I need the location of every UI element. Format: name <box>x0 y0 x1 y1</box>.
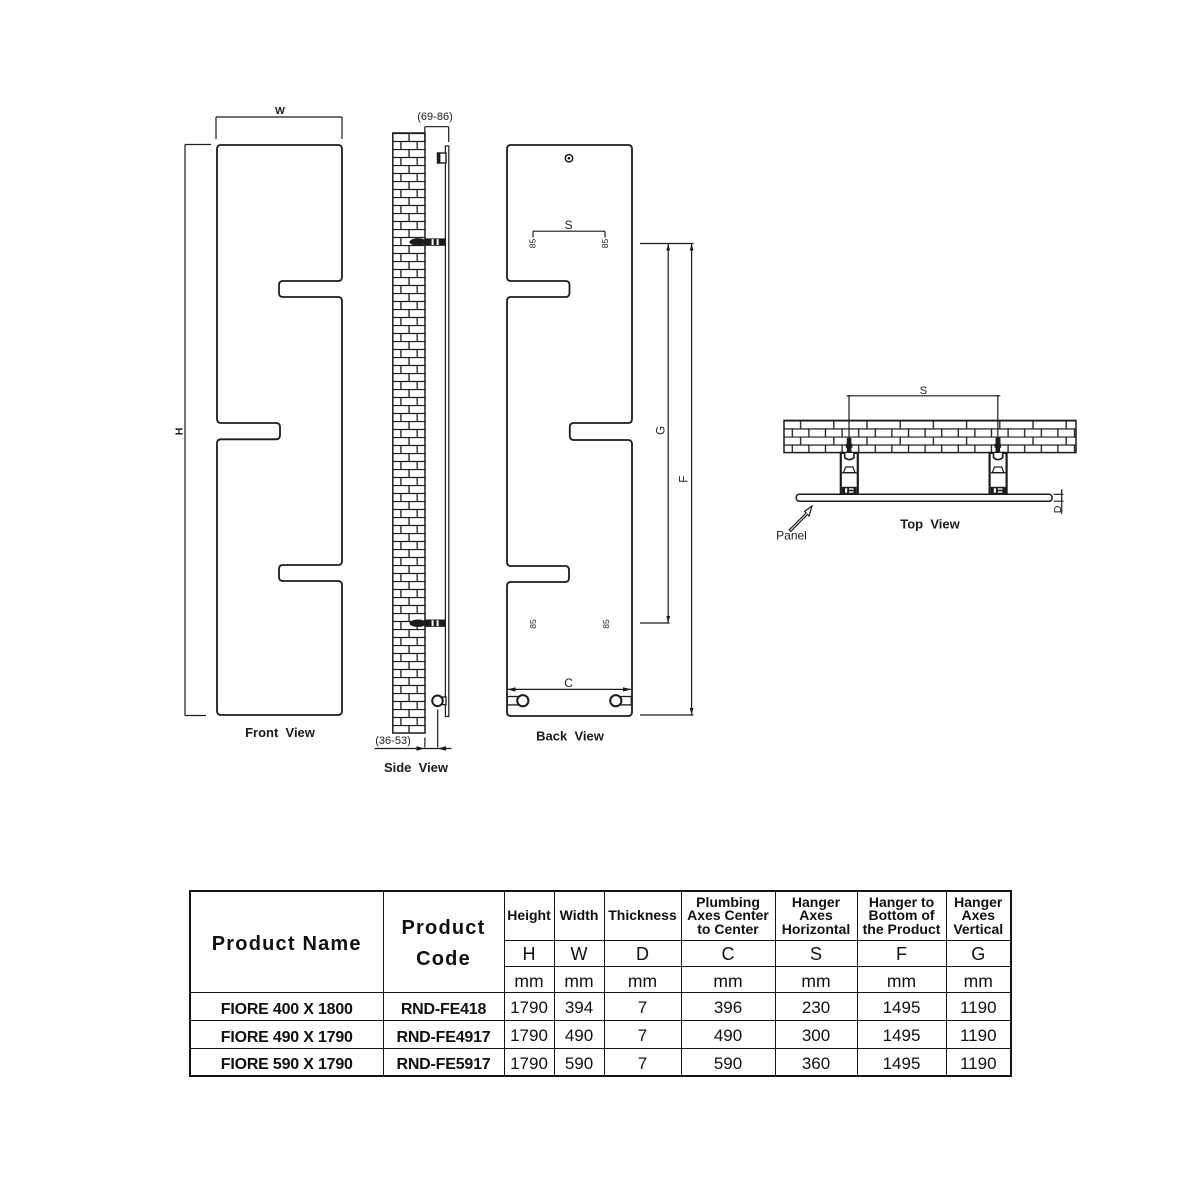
svg-text:85: 85 <box>528 239 538 249</box>
svg-text:G: G <box>656 426 668 435</box>
svg-text:Back View: Back View <box>536 729 605 744</box>
svg-text:85: 85 <box>601 619 611 629</box>
svg-text:S: S <box>565 218 573 232</box>
svg-text:Front View: Front View <box>245 725 316 740</box>
svg-text:85: 85 <box>600 239 610 249</box>
svg-text:C: C <box>564 676 573 690</box>
svg-text:(36-53): (36-53) <box>375 735 410 747</box>
svg-text:W: W <box>275 105 285 117</box>
svg-text:D: D <box>1052 505 1064 513</box>
svg-text:F: F <box>678 476 690 483</box>
svg-text:85: 85 <box>528 619 538 629</box>
svg-text:Top View: Top View <box>900 517 960 532</box>
svg-text:(69-86): (69-86) <box>417 111 452 123</box>
svg-text:Panel: Panel <box>776 529 807 543</box>
svg-text:Side View: Side View <box>384 760 449 775</box>
svg-text:H: H <box>174 428 186 436</box>
